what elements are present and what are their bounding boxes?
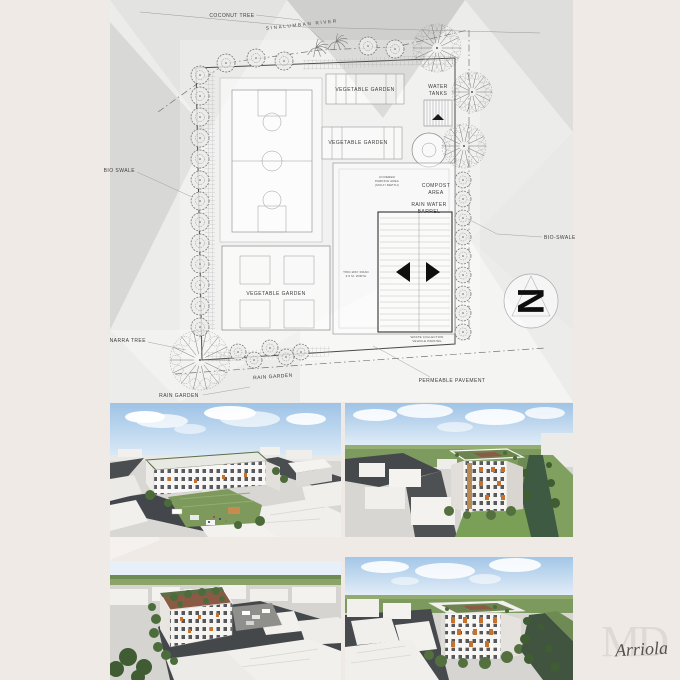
label-compost-2: AREA [428,190,444,196]
tree-line [110,575,341,579]
note-road-2: 3.5 M. WIDTH [346,274,367,278]
label-vegetable-garden-bottom: VEGETABLE GARDEN [246,291,305,297]
field-far [345,595,573,599]
vegetable-garden-mid: VEGETABLE GARDEN [322,127,402,159]
label-permeable-pavement: PERMEABLE PAVEMENT [419,378,486,384]
render-aerial-river-view [345,403,573,537]
water-tank-circle [412,133,446,167]
label-water-tanks-2: TANKS [429,91,448,97]
signature-block: MD Arriola [584,608,674,672]
note-covered-parking-3: (MULTI DEPTH) [375,183,399,187]
render-aerial-roofdeck-view [110,561,341,680]
label-rain-garden-bottom: RAIN GARDEN [159,393,199,399]
presentation-board: VEGETABLE GARDEN VEGETABLE GARDEN WATER … [0,0,680,680]
signature-name: Arriola [614,638,668,662]
note-waste-2: VEHICLE PARKING [412,339,442,343]
north-letter: N [510,288,551,315]
label-bio-swale-left: BIO SWALE [104,168,136,174]
render-eyelevel-river-view [345,557,573,680]
main-building [429,601,525,659]
label-vegetable-garden-top: VEGETABLE GARDEN [335,87,394,93]
vegetable-garden-top: VEGETABLE GARDEN [326,74,404,104]
label-rain-water-barrel-1: RAIN WATER [411,202,446,208]
label-vegetable-garden-mid: VEGETABLE GARDEN [328,140,387,146]
field-far [345,445,573,449]
basketball-court [220,78,322,242]
label-water-tanks-1: WATER [428,84,448,90]
label-coconut-tree: COCONUT TREE [209,13,254,19]
render-aerial-street-view [110,403,341,537]
label-narra-tree: NARRA TREE [110,338,147,344]
north-arrow: N [504,274,558,328]
playground [228,507,240,514]
label-compost-1: COMPOST [422,183,450,189]
label-bio-swale-right: BIO-SWALE [544,235,576,241]
building-footprint: WASTE COLLECTION VEHICLE PARKING [378,212,452,343]
vegetable-garden-bottom: VEGETABLE GARDEN [222,246,330,330]
label-rain-water-barrel-2: BARREL [418,209,441,215]
